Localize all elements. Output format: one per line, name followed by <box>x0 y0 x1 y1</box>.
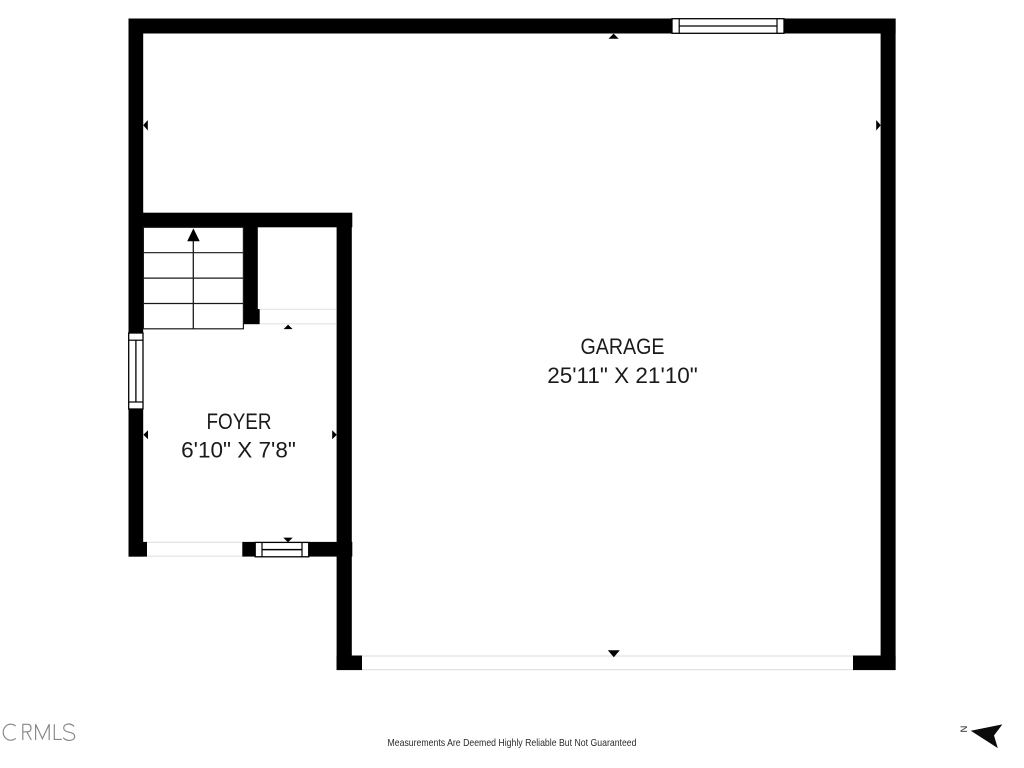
svg-text:GARAGE: GARAGE <box>581 334 665 359</box>
svg-text:6'10" X 7'8": 6'10" X 7'8" <box>181 438 296 463</box>
svg-text:FOYER: FOYER <box>207 409 272 434</box>
svg-text:N: N <box>958 726 969 733</box>
svg-text:Measurements Are Deemed Highly: Measurements Are Deemed Highly Reliable … <box>388 738 637 749</box>
svg-text:25'11" X 21'10": 25'11" X 21'10" <box>547 363 698 388</box>
